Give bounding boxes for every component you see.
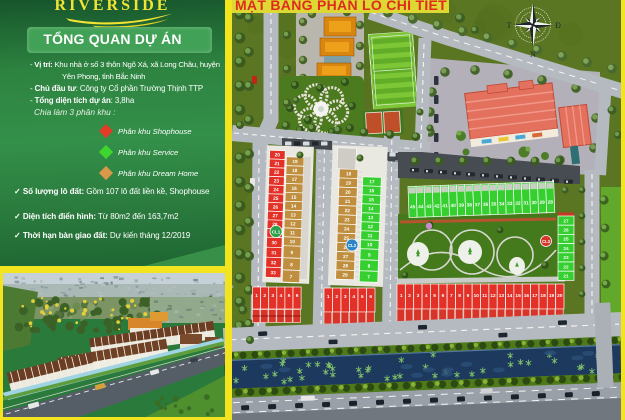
svg-text:33: 33 [507,201,513,206]
svg-text:4: 4 [425,293,428,299]
svg-text:18: 18 [540,293,546,299]
svg-text:22: 22 [274,170,280,175]
svg-text:1: 1 [327,294,330,300]
svg-text:1: 1 [255,293,258,299]
svg-text:15: 15 [369,197,375,202]
svg-text:10: 10 [367,242,373,247]
svg-text:32: 32 [271,260,277,265]
svg-text:32: 32 [515,201,521,206]
svg-text:5: 5 [361,294,364,300]
svg-text:19: 19 [292,159,298,164]
svg-text:17: 17 [369,179,375,184]
svg-text:31: 31 [271,250,277,255]
svg-text:14: 14 [368,206,374,211]
svg-text:20: 20 [557,293,563,299]
svg-text:16: 16 [291,186,297,191]
svg-text:MẶT BẰNG PHÂN LÔ CHI TIẾT: MẶT BẰNG PHÂN LÔ CHI TIẾT [235,0,447,13]
svg-text:35: 35 [491,201,497,206]
svg-text:3: 3 [271,293,274,299]
svg-text:18: 18 [292,168,298,173]
svg-text:23: 23 [563,255,569,260]
svg-text:18: 18 [346,171,352,176]
svg-text:19: 19 [549,293,555,299]
svg-text:7: 7 [450,293,453,299]
svg-text:16: 16 [524,293,530,299]
svg-text:5: 5 [288,293,291,299]
svg-text:30: 30 [531,200,537,205]
svg-text:22: 22 [345,208,351,213]
svg-text:26: 26 [563,228,569,233]
svg-text:28: 28 [343,263,349,268]
svg-text:4: 4 [280,293,283,299]
svg-text:3: 3 [417,293,420,299]
svg-text:10: 10 [474,293,480,299]
svg-text:28: 28 [548,200,554,205]
svg-text:15: 15 [515,293,521,299]
svg-text:CL2: CL2 [348,243,357,248]
svg-text:CL3: CL3 [542,239,551,244]
svg-text:25: 25 [273,196,279,201]
svg-text:17: 17 [532,293,538,299]
svg-text:41: 41 [442,203,448,208]
svg-text:21: 21 [563,274,569,279]
svg-text:16: 16 [369,188,375,193]
svg-text:25: 25 [563,237,569,242]
svg-text:4: 4 [352,294,355,300]
svg-text:23: 23 [274,178,280,183]
svg-text:10: 10 [290,239,296,244]
svg-text:29: 29 [540,200,546,205]
svg-text:11: 11 [367,233,373,238]
svg-text:27: 27 [343,254,349,259]
svg-text:21: 21 [345,199,351,204]
svg-text:2: 2 [263,293,266,299]
svg-text:20: 20 [275,152,281,157]
svg-text:CL1: CL1 [272,230,281,235]
svg-text:31: 31 [523,200,529,205]
svg-text:22: 22 [563,264,569,269]
svg-text:37: 37 [475,202,481,207]
svg-text:11: 11 [290,230,296,235]
svg-text:43: 43 [426,204,432,209]
svg-text:24: 24 [273,187,279,192]
svg-text:Đ: Đ [555,21,561,30]
svg-text:12: 12 [368,224,374,229]
svg-text:15: 15 [291,195,297,200]
svg-text:5: 5 [433,293,436,299]
svg-text:3: 3 [344,294,347,300]
svg-text:21: 21 [274,161,280,166]
svg-text:39: 39 [459,203,465,208]
svg-text:12: 12 [490,293,496,299]
svg-text:1: 1 [400,293,403,299]
svg-text:20: 20 [345,190,351,195]
svg-text:6: 6 [296,293,299,299]
svg-text:12: 12 [290,221,296,226]
svg-text:42: 42 [434,203,440,208]
svg-text:2: 2 [408,293,411,299]
svg-text:8: 8 [458,293,461,299]
svg-text:9: 9 [467,293,470,299]
svg-text:6: 6 [369,294,372,300]
svg-text:44: 44 [418,204,424,209]
svg-text:27: 27 [563,218,569,223]
svg-text:29: 29 [342,272,348,277]
svg-text:13: 13 [368,215,374,220]
svg-text:24: 24 [563,246,569,251]
svg-text:13: 13 [499,293,505,299]
svg-text:13: 13 [291,212,297,217]
svg-text:6: 6 [442,293,445,299]
svg-text:45: 45 [410,204,416,209]
svg-text:33: 33 [270,270,276,275]
svg-text:2: 2 [335,294,338,300]
svg-text:23: 23 [344,217,350,222]
svg-text:24: 24 [344,226,350,231]
svg-text:40: 40 [450,203,456,208]
svg-text:14: 14 [507,293,513,299]
svg-text:T: T [507,21,512,30]
svg-text:27: 27 [272,213,278,218]
svg-text:19: 19 [346,180,352,185]
svg-text:34: 34 [499,201,505,206]
svg-text:N: N [530,50,536,59]
svg-text:11: 11 [482,293,487,299]
svg-text:36: 36 [483,202,489,207]
svg-text:14: 14 [291,204,297,209]
svg-text:26: 26 [273,204,279,209]
svg-text:30: 30 [272,240,278,245]
svg-text:38: 38 [467,202,473,207]
svg-text:17: 17 [292,177,298,182]
